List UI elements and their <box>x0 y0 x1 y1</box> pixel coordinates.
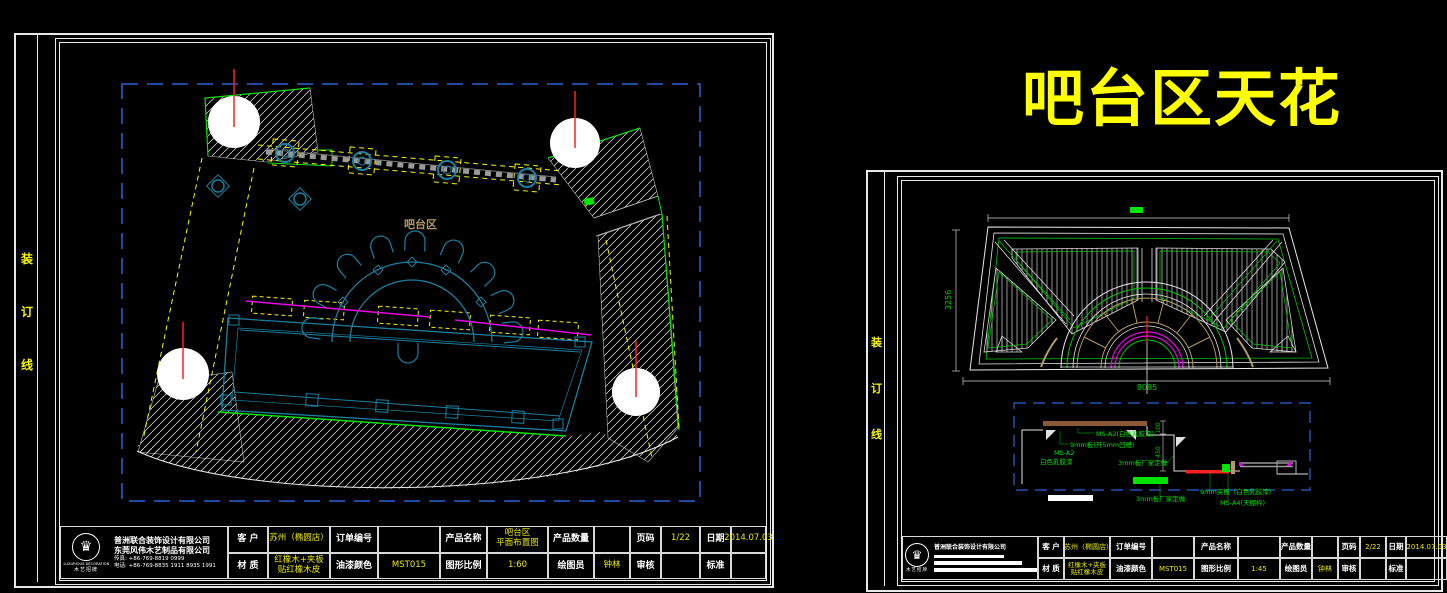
field-material-value: 红橡木+夹板 贴红橡木皮 <box>1064 558 1110 580</box>
page-title-banner: 吧台区天花 <box>1022 68 1342 130</box>
logo-subtitle: 木艺招牌 <box>906 567 928 573</box>
field-review-value <box>661 553 700 580</box>
logo-caption: LUXURIOUS DECORATION <box>63 561 109 566</box>
company-phone: 电话: +86-769-8835 1911 8935 1991 <box>114 563 216 570</box>
field-paint-label: 油漆颜色 <box>1110 558 1152 580</box>
field-client-value: 苏州（椭圆店） <box>268 526 330 553</box>
binding-char: 线 <box>871 426 882 442</box>
field-paint-value: MST015 <box>378 553 440 580</box>
company-redacted-bar <box>934 561 1022 565</box>
field-scale-label: 图形比例 <box>1194 558 1238 580</box>
field-review-label: 审核 <box>1338 558 1360 580</box>
section-green-bar <box>1133 477 1168 484</box>
field-drafter-value: 钟林 <box>594 553 630 580</box>
binding-strip-right: 装 订 线 <box>871 334 882 442</box>
company-name-2: 东莞风伟木艺制品有限公司 <box>114 546 216 556</box>
left-dimension <box>952 230 960 371</box>
bar-plan-drawing[interactable]: 吧台区 <box>60 43 764 527</box>
field-product-value: 吧台区 平面布置图 <box>487 526 548 553</box>
field-date-label: 日期 <box>1386 536 1406 558</box>
field-page-value: 2/22 <box>1360 536 1386 558</box>
field-order-label: 订单编号 <box>330 526 378 553</box>
plan-area-label: 吧台区 <box>404 217 437 231</box>
section-label: 3mm板厂家定做 <box>1136 494 1186 503</box>
section-gray-boards <box>1240 463 1293 467</box>
field-product-value <box>1238 536 1280 558</box>
section-corner-mark <box>1176 437 1186 447</box>
logo-subtitle: 木艺招牌 <box>74 566 98 573</box>
cad-workspace: { "banner": { "title": "吧台区天花" }, "palet… <box>0 0 1447 593</box>
field-material-value: 红橡木+夹板 贴红橡木皮 <box>268 553 330 580</box>
section-white-bar <box>1048 495 1093 501</box>
field-paint-label: 油漆颜色 <box>330 553 378 580</box>
binding-char: 装 <box>871 334 882 350</box>
field-standard-label: 标准 <box>700 553 731 580</box>
stool-row-dashed <box>251 296 578 340</box>
dim-450: 450 <box>1155 446 1162 458</box>
field-date-value: 2014.07.03 <box>1406 536 1447 558</box>
section-label: 3mm板厂家定做 <box>1118 458 1168 467</box>
binding-char: 订 <box>871 380 882 396</box>
sheet-right-binding-divider <box>884 172 885 586</box>
field-order-value <box>1152 536 1194 558</box>
field-product-label: 产品名称 <box>1194 536 1238 558</box>
binding-char: 线 <box>21 356 33 373</box>
ceiling-plan-drawing[interactable]: 8085 3256 100 450 MS <box>902 181 1432 536</box>
field-page-label: 页码 <box>1338 536 1360 558</box>
counter-and-posts <box>207 144 592 431</box>
field-qty-label: 产品数量 <box>1280 536 1312 558</box>
field-qty-value <box>1312 536 1338 558</box>
company-redacted-bar <box>934 555 1004 558</box>
company-logo: ♛ <box>905 543 929 567</box>
company-cell: ♛ LUXURIOUS DECORATION 木艺招牌 普洲联合装饰设计有限公司… <box>60 526 228 579</box>
field-scale-value: 1:45 <box>1238 558 1280 580</box>
field-qty-value <box>594 526 630 553</box>
field-scale-label: 图形比例 <box>440 553 487 580</box>
field-client-label: 客 户 <box>1038 536 1064 558</box>
field-material-label: 材 质 <box>1038 558 1064 580</box>
company-cell: ♛ 木艺招牌 普洲联合装饰设计有限公司 <box>902 536 1038 580</box>
chair-fan <box>301 231 524 363</box>
section-label: MS-A4(天棚枠) <box>1220 498 1265 507</box>
field-client-value: 苏州（椭圆店） <box>1064 536 1110 558</box>
dim-width: 8085 <box>1137 383 1157 392</box>
field-standard-value <box>1406 558 1447 580</box>
company-name: 普洲联合装饰设计有限公司 <box>934 544 1038 552</box>
section-boundary-dashed <box>1014 403 1310 490</box>
field-drafter-label: 绘图员 <box>1280 558 1312 580</box>
company-logo: ♛ <box>72 533 100 561</box>
section-green-block <box>1222 464 1230 472</box>
field-client-label: 客 户 <box>228 526 268 553</box>
chain-rail <box>266 152 556 180</box>
field-order-label: 订单编号 <box>1110 536 1152 558</box>
section-label: 白色乳胶漆 <box>1040 457 1073 466</box>
field-standard-value <box>731 553 766 580</box>
dim-100: 100 <box>1155 422 1162 434</box>
section-wood-cap <box>1043 421 1147 426</box>
field-drafter-label: 绘图员 <box>548 553 594 580</box>
chain-rail-line <box>266 149 556 177</box>
field-qty-label: 产品数量 <box>548 526 594 553</box>
section-label: 9mm夹板（白色乳胶漆） <box>1200 487 1275 496</box>
top-dimension <box>988 214 1289 222</box>
title-block-left: ♛ LUXURIOUS DECORATION 木艺招牌 普洲联合装饰设计有限公司… <box>60 526 764 579</box>
company-name-1: 普洲联合装饰设计有限公司 <box>114 536 216 546</box>
field-order-value <box>378 526 440 553</box>
company-fax: 传真: +86-769-8819 0999 <box>114 556 216 563</box>
field-material-label: 材 质 <box>228 553 268 580</box>
section-label: 9mm板(开5mm凹槽) <box>1070 440 1135 449</box>
field-page-value: 1/22 <box>661 526 700 553</box>
title-block-right: ♛ 木艺招牌 普洲联合装饰设计有限公司 客 户 苏州（椭圆店） 订单编号 产品名… <box>902 536 1432 580</box>
magenta-counter-lines <box>246 301 591 335</box>
binding-char: 订 <box>21 303 33 320</box>
field-paint-value: MST015 <box>1152 558 1194 580</box>
field-drafter-value: 钟林 <box>1312 558 1338 580</box>
field-page-label: 页码 <box>630 526 661 553</box>
field-product-label: 产品名称 <box>440 526 487 553</box>
field-standard-label: 标准 <box>1386 558 1406 580</box>
binding-strip-left: 装 订 线 <box>21 250 33 373</box>
section-label: MS-A2(白色乳胶漆) <box>1096 429 1154 438</box>
columns <box>157 69 660 416</box>
company-redacted-bar <box>934 568 1038 572</box>
field-review-label: 审核 <box>630 553 661 580</box>
field-review-value <box>1360 558 1386 580</box>
section-corner-mark <box>1046 430 1056 440</box>
section-label: MS-A2 <box>1054 449 1075 457</box>
green-tag <box>1130 207 1143 213</box>
section-tan-block <box>1231 461 1235 474</box>
field-scale-value: 1:60 <box>487 553 548 580</box>
sheet-left-binding-divider <box>37 35 38 582</box>
dim-height: 3256 <box>944 290 953 310</box>
hatch-right-band <box>598 214 678 462</box>
field-date-value: 2014.07.03 <box>731 526 766 553</box>
binding-char: 装 <box>21 250 33 267</box>
